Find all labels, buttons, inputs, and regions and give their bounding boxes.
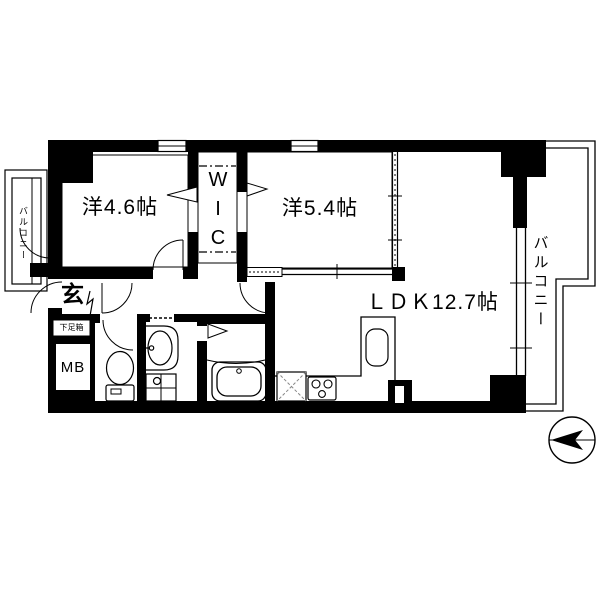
washroom-door-stub [174,314,197,322]
wic-label: WIC [203,165,233,260]
shoe-box-label: 下足箱 [53,324,90,332]
toilet-washroom-divider [137,314,146,403]
room-4-6-label: 洋4.6帖 [55,197,185,218]
floor-plan: 洋4.6帖 洋5.4帖 ＬＤＫ12.7帖 WIC バルコニー バルコニー 玄 下… [0,0,600,600]
corner-pillar-bottom-right [490,375,526,413]
bathroom-top-wall [207,314,265,324]
counter-end-notch [395,386,404,403]
wic-left-wall-lower [188,232,198,279]
wic-right-wall-lower [237,232,247,282]
toilet-tank [106,385,134,401]
sliding-track [247,268,282,277]
entrance-label: 玄 [61,283,84,306]
balcony-right-label: バルコニー [528,220,552,345]
room1-bottom-wall [48,267,153,279]
wic-left-wall-upper [188,152,198,192]
balcony-left-label: バルコニー [13,182,32,284]
meter-box-label: MB [56,360,90,375]
top-wall-segment [184,140,293,152]
floor-plan-drawing [0,0,600,600]
top-wall-segment [316,140,501,152]
canvas-background [0,0,600,600]
ldk-label: ＬＤＫ12.7帖 [355,292,510,313]
sliding-door-end-block [392,267,405,281]
room-5-4-label: 洋5.4帖 [255,198,385,219]
compass-icon [549,417,595,463]
stove-icon [308,377,336,400]
bathroom-door-opening [197,326,207,341]
wic-right-wall-upper [237,152,247,192]
corner-pillar-top-right [501,140,546,177]
right-wall-upper [513,176,527,228]
